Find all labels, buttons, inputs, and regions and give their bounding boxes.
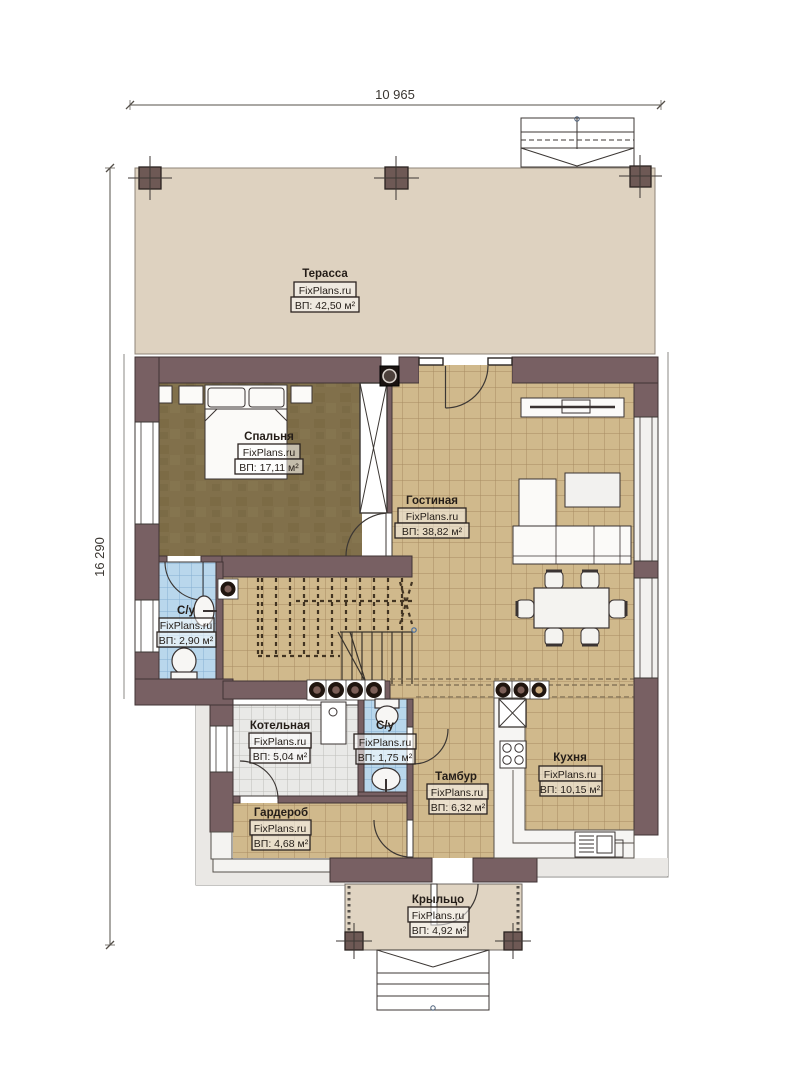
svg-text:Котельная: Котельная — [250, 720, 310, 732]
svg-text:ВП: 1,75 м²: ВП: 1,75 м² — [358, 752, 413, 764]
svg-text:ВП: 10,15 м²: ВП: 10,15 м² — [540, 784, 601, 796]
svg-text:Терасса: Терасса — [302, 268, 348, 280]
svg-text:ВП: 4,92 м²: ВП: 4,92 м² — [412, 925, 467, 937]
svg-text:16 290: 16 290 — [92, 537, 107, 577]
svg-text:10 965: 10 965 — [375, 87, 415, 102]
svg-text:FixPlans.ru: FixPlans.ru — [406, 511, 459, 523]
svg-text:ВП: 5,04 м²: ВП: 5,04 м² — [253, 751, 308, 763]
svg-text:ВП: 2,90 м²: ВП: 2,90 м² — [159, 635, 214, 647]
svg-text:Гостиная: Гостиная — [406, 495, 458, 507]
svg-text:FixPlans.ru: FixPlans.ru — [254, 736, 307, 748]
svg-text:FixPlans.ru: FixPlans.ru — [254, 823, 307, 835]
svg-text:С/у: С/у — [177, 605, 196, 617]
svg-text:Крыльцо: Крыльцо — [412, 894, 464, 906]
svg-text:Тамбур: Тамбур — [435, 771, 477, 783]
svg-text:ВП: 4,68 м²: ВП: 4,68 м² — [254, 838, 309, 850]
svg-text:ВП: 6,32 м²: ВП: 6,32 м² — [431, 802, 486, 814]
svg-text:FixPlans.ru: FixPlans.ru — [431, 787, 484, 799]
svg-text:FixPlans.ru: FixPlans.ru — [160, 620, 213, 632]
svg-text:ВП: 38,82 м²: ВП: 38,82 м² — [402, 526, 463, 538]
svg-text:FixPlans.ru: FixPlans.ru — [299, 285, 352, 297]
svg-text:ВП: 42,50 м²: ВП: 42,50 м² — [295, 300, 356, 312]
svg-text:Спальня: Спальня — [244, 431, 294, 443]
svg-text:FixPlans.ru: FixPlans.ru — [412, 910, 465, 922]
svg-text:С/у: С/у — [376, 720, 395, 732]
svg-text:Кухня: Кухня — [553, 752, 587, 764]
svg-text:ВП: 17,11 м²: ВП: 17,11 м² — [239, 462, 299, 474]
svg-text:FixPlans.ru: FixPlans.ru — [359, 737, 412, 749]
svg-text:FixPlans.ru: FixPlans.ru — [544, 769, 597, 781]
svg-text:Гардероб: Гардероб — [254, 807, 308, 819]
svg-text:FixPlans.ru: FixPlans.ru — [243, 447, 296, 459]
